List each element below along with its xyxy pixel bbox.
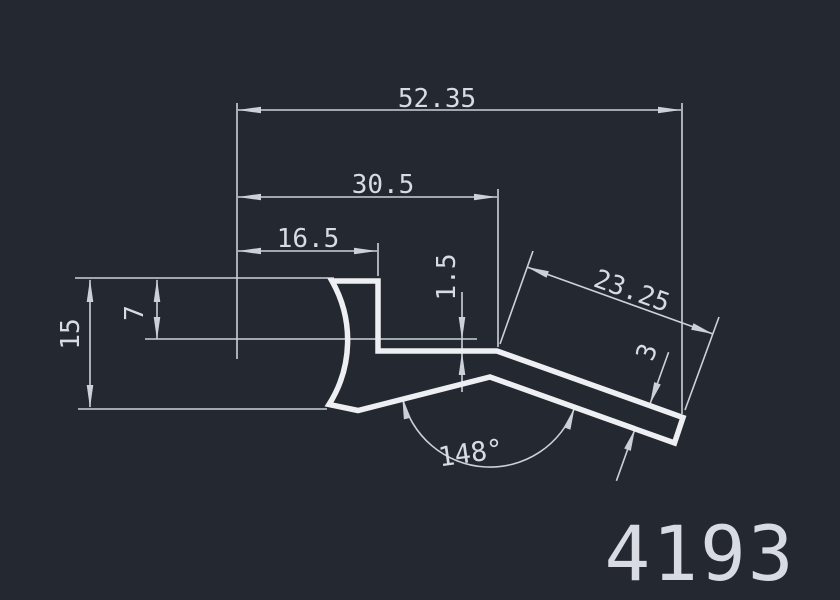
- dim-label-upper-width: 30.5: [352, 170, 415, 200]
- arrowhead: [238, 248, 261, 255]
- arrowhead: [354, 248, 377, 255]
- arrowhead: [238, 107, 261, 114]
- dim-label-overall-width: 52.35: [398, 84, 476, 114]
- part-number-label: 4193: [604, 509, 795, 598]
- arrowhead: [564, 408, 575, 430]
- arrowhead: [527, 267, 549, 278]
- arrowhead: [658, 107, 681, 114]
- arrowhead: [459, 352, 466, 375]
- dim-label-arm-length: 23.25: [590, 264, 674, 318]
- dim-label-arm-thickness: 3: [631, 340, 665, 365]
- arrowhead: [154, 279, 161, 302]
- arrowhead: [459, 317, 466, 340]
- arrowhead: [624, 429, 635, 451]
- extension-line-arm-left: [500, 251, 533, 344]
- dim-label-top-width: 16.5: [277, 224, 340, 254]
- arrowhead: [87, 385, 94, 408]
- arrowhead: [691, 323, 713, 334]
- extension-lines: [75, 103, 719, 414]
- arrowhead: [238, 194, 261, 201]
- dim-label-height-upper: 7: [120, 305, 150, 321]
- dim-label-height-total: 15: [56, 318, 86, 349]
- dim-label-step-thickness: 1.5: [432, 254, 462, 301]
- arrowhead: [154, 317, 161, 340]
- arrowhead: [650, 382, 661, 404]
- cad-drawing-viewport: 52.35 30.5 16.5 15 7 1.5 23.25 3 148° 41…: [0, 0, 840, 600]
- arrowhead: [474, 194, 497, 201]
- cad-drawing-canvas: 52.35 30.5 16.5 15 7 1.5 23.25 3 148° 41…: [0, 0, 840, 600]
- arrowhead: [87, 279, 94, 302]
